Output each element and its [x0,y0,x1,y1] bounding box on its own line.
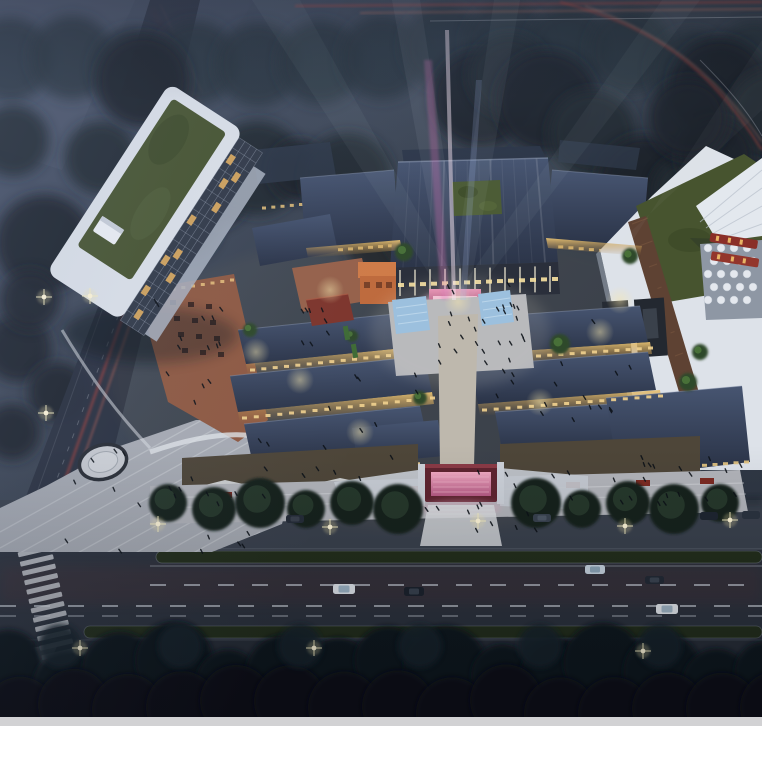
central-axis-walk [438,314,478,468]
architectural-rendering: Aerial night-time architectural renderin… [0,0,762,762]
rendering-canvas [0,0,762,717]
reflecting-pool-left [392,296,430,334]
footer-gray-band [0,717,762,726]
night-scene [0,0,762,717]
footer-white-margin [0,726,762,762]
